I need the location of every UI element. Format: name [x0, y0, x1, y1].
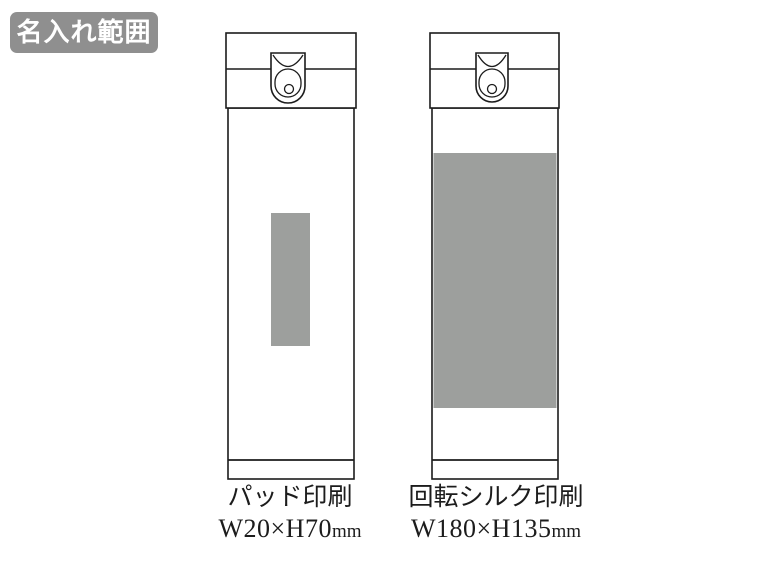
lid-latch-icon — [476, 53, 508, 102]
print-range-badge: 名入れ範囲 — [10, 12, 158, 53]
print-method-label: パッド印刷 — [190, 483, 390, 513]
print-size-unit: mm — [332, 521, 362, 542]
print-area-diagram: 名入れ範囲 パッド印刷 W20×H70mm — [0, 0, 760, 570]
latch-outer-shape — [476, 53, 508, 102]
print-size-value: W180×H135 — [411, 514, 551, 543]
print-area-rect-pad — [271, 213, 310, 346]
bottle-illustration-rotary-silk-print — [425, 28, 565, 483]
print-range-badge-label: 名入れ範囲 — [16, 17, 151, 47]
lid-latch-icon — [271, 53, 305, 103]
caption-rotary-silk-print: 回転シルク印刷 W180×H135mm — [396, 483, 596, 548]
print-area-rect-rotary-silk — [434, 153, 557, 408]
print-size-label: W180×H135mm — [396, 513, 596, 548]
caption-pad-print: パッド印刷 W20×H70mm — [190, 483, 390, 548]
print-method-label: 回転シルク印刷 — [396, 483, 596, 513]
print-size-label: W20×H70mm — [190, 513, 390, 548]
bottle-illustration-pad-print — [220, 28, 360, 483]
print-size-value: W20×H70 — [218, 514, 331, 543]
print-size-unit: mm — [551, 521, 581, 542]
